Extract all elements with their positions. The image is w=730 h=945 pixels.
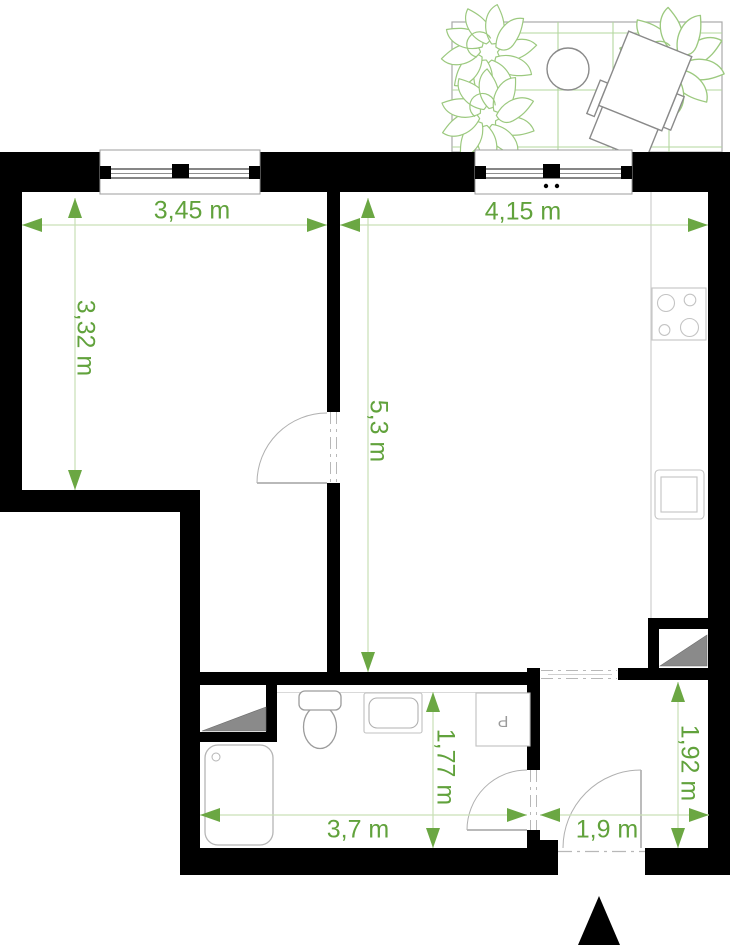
walls	[0, 152, 730, 875]
wall-entrance-jamb	[527, 840, 558, 850]
cooktop	[652, 288, 706, 340]
window-room-left	[100, 150, 260, 194]
window-living	[475, 150, 632, 194]
dim-room-left-depth: 3,32 m	[73, 300, 98, 376]
dim-bathroom-width: 3,7 m	[327, 818, 390, 843]
floor-plan-drawing	[0, 0, 730, 945]
door-swing-arc	[467, 770, 527, 830]
wall-middle-upper	[327, 192, 340, 412]
wall-right	[708, 192, 730, 875]
bathtub	[205, 745, 273, 845]
wall-bathroom-top	[180, 672, 540, 685]
kitchen	[651, 192, 706, 618]
door-bathroom	[467, 770, 537, 830]
wall-room-left-bottom	[0, 490, 200, 512]
wall-left	[0, 192, 22, 512]
shaft-kitchen-duct	[660, 635, 707, 666]
shaft-bathroom-duct	[202, 707, 266, 731]
washbasin	[364, 693, 422, 733]
toilet-tank	[299, 691, 341, 710]
kitchen-sink	[655, 470, 704, 519]
washing-machine-label: P	[498, 712, 509, 728]
dim-room-left-width: 3,45 m	[154, 199, 230, 224]
dimension-arrows	[22, 198, 709, 848]
shaft-bathroom-wall-right	[266, 672, 277, 742]
dim-bathroom-depth: 1,77 m	[433, 729, 458, 805]
dim-hall-depth: 1,92 m	[677, 725, 702, 801]
balcony-table	[547, 48, 589, 90]
wall-bottom-right	[645, 848, 730, 875]
dim-living-width: 4,15 m	[485, 200, 561, 225]
window-handle-dot	[544, 184, 548, 188]
shaft-kitchen-wall-bottom	[648, 668, 708, 680]
dim-hall-width: 1,9 m	[576, 818, 639, 843]
dimension-lines	[22, 198, 709, 848]
dim-living-depth: 5,3 m	[366, 400, 391, 463]
entrance-arrow-icon	[578, 896, 620, 945]
wall-bottom-left	[180, 848, 558, 875]
wall-middle-lower	[327, 483, 340, 685]
door-room-left	[257, 412, 337, 483]
hall-passage-opening	[541, 671, 617, 679]
shaft-bathroom-wall-bottom	[196, 732, 277, 742]
door-swing-arc	[257, 413, 327, 483]
window-handle-dot	[555, 184, 559, 188]
floor-plan: 3,45 m 4,15 m 3,32 m 5,3 m 1,77 m 1,92 m…	[0, 0, 730, 945]
toilet	[299, 691, 341, 749]
